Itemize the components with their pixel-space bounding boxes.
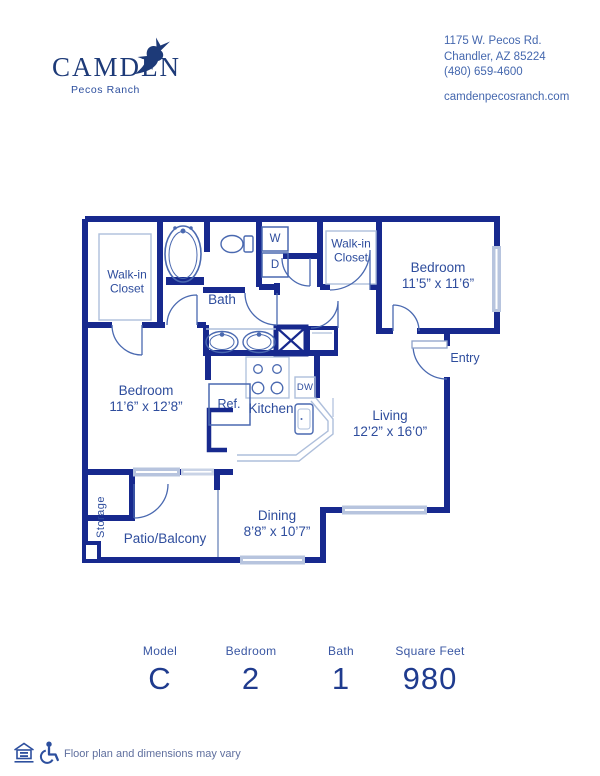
kitchen-sink-icon (295, 404, 313, 434)
room-label-patio-balcony: Patio/Balcony (124, 531, 207, 547)
room-label-bedroom-2: Bedroom 11’5” x 11’6” (402, 260, 474, 292)
stove-icon (246, 357, 289, 398)
room-label-kitchen: Kitchen (248, 401, 293, 417)
room-label-walk-in-closet-2: Walk-in Closet (331, 238, 371, 265)
utility-closet-icon (276, 327, 336, 354)
vanity-sinks-icon (206, 329, 276, 353)
dishwasher-label: DW (297, 380, 313, 396)
room-label-walk-in-closet-1: Walk-in Closet (107, 269, 147, 296)
patio-column (84, 543, 99, 561)
floor-plan-page: CAMDEN Pecos Ranch 1175 W. Pecos Rd. Cha… (0, 0, 600, 776)
room-label-storage: Storage (93, 496, 109, 538)
room-label-bedroom-1: Bedroom 11’6” x 12’8” (109, 383, 182, 415)
dryer-label: D (271, 257, 279, 273)
bathtub-icon (165, 226, 201, 282)
toilet-icon (221, 236, 253, 253)
room-label-entry: Entry (450, 350, 479, 366)
refrigerator-label: Ref. (218, 396, 241, 412)
room-label-dining: Dining 8’8” x 10’7” (244, 508, 311, 540)
room-label-living: Living 12’2” x 16’0” (353, 408, 427, 440)
pantry-closet (209, 410, 233, 450)
washer-label: W (270, 231, 281, 247)
room-label-bath: Bath (208, 292, 236, 308)
